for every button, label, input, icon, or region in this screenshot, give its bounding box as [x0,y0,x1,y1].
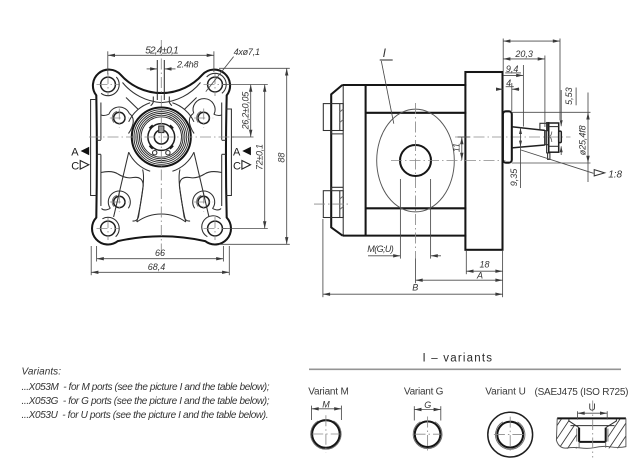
svg-text:...X053U - for U ports (see t: ...X053U - for U ports (see the picture … [22,410,269,421]
svg-text:Variant U: Variant U [485,386,526,397]
svg-text:Variants:: Variants: [22,366,62,377]
svg-text:I – variants: I – variants [423,353,493,365]
svg-text:Variant G: Variant G [404,386,444,397]
svg-text:2.4h8: 2.4h8 [176,59,198,69]
svg-text:1:8: 1:8 [608,169,622,180]
svg-text:U: U [589,403,596,414]
svg-text:C: C [71,160,79,172]
svg-text:68,4: 68,4 [148,262,166,272]
svg-text:G: G [424,400,431,410]
svg-text:9,35: 9,35 [509,168,519,187]
svg-text:9,4: 9,4 [506,64,519,74]
svg-text:20,3: 20,3 [514,49,533,59]
svg-text:11: 11 [452,143,462,152]
svg-text:4: 4 [506,78,511,88]
svg-text:18: 18 [480,260,490,270]
svg-text:B: B [412,282,418,292]
svg-text:...X053M - for M ports (see t: ...X053M - for M ports (see the picture … [22,382,270,393]
svg-text:52,4±0,1: 52,4±0,1 [145,45,179,56]
svg-text:M: M [322,399,330,409]
svg-text:26,2±0,05: 26,2±0,05 [240,91,250,131]
svg-text:A: A [476,270,483,280]
svg-text:4xø7,1: 4xø7,1 [234,47,260,57]
svg-text:ø25,4f8: ø25,4f8 [578,125,588,155]
svg-text:66: 66 [155,248,165,258]
svg-text:72±0,1: 72±0,1 [254,144,264,170]
svg-text:A: A [71,147,79,159]
svg-text:Variant M: Variant M [308,386,349,397]
svg-text:88: 88 [277,153,287,163]
svg-text:...X053G - for G ports (see t: ...X053G - for G ports (see the picture … [22,396,270,407]
svg-text:(SAEJ475 (ISO R725): (SAEJ475 (ISO R725) [535,387,629,398]
svg-text:5,53: 5,53 [564,87,574,105]
svg-text:M(G;U): M(G;U) [367,244,394,254]
svg-text:A: A [233,147,241,159]
svg-text:C: C [233,160,241,172]
